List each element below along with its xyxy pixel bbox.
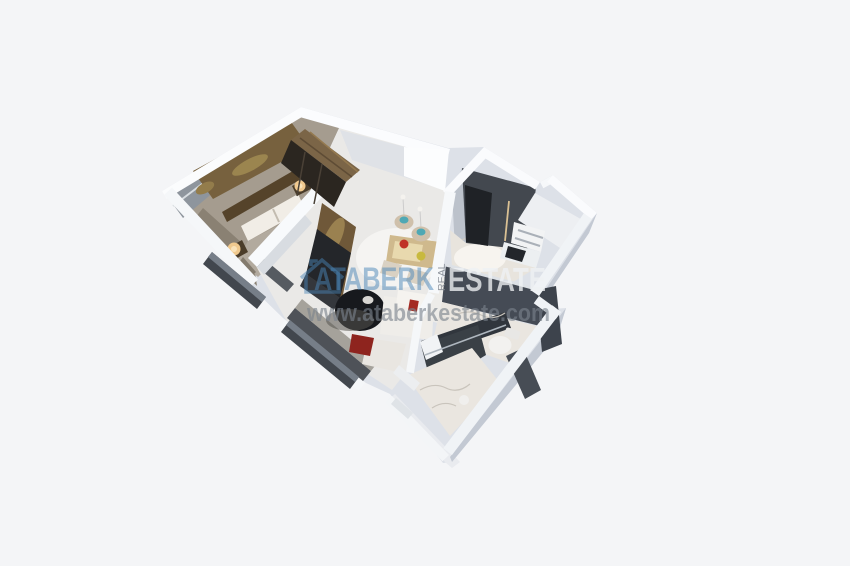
svg-text:ESTATE: ESTATE: [448, 261, 546, 298]
svg-text:www.ataberkestate.com: www.ataberkestate.com: [306, 300, 550, 327]
svg-text:ATABERK: ATABERK: [314, 261, 434, 297]
svg-text:REAL: REAL: [436, 263, 448, 291]
